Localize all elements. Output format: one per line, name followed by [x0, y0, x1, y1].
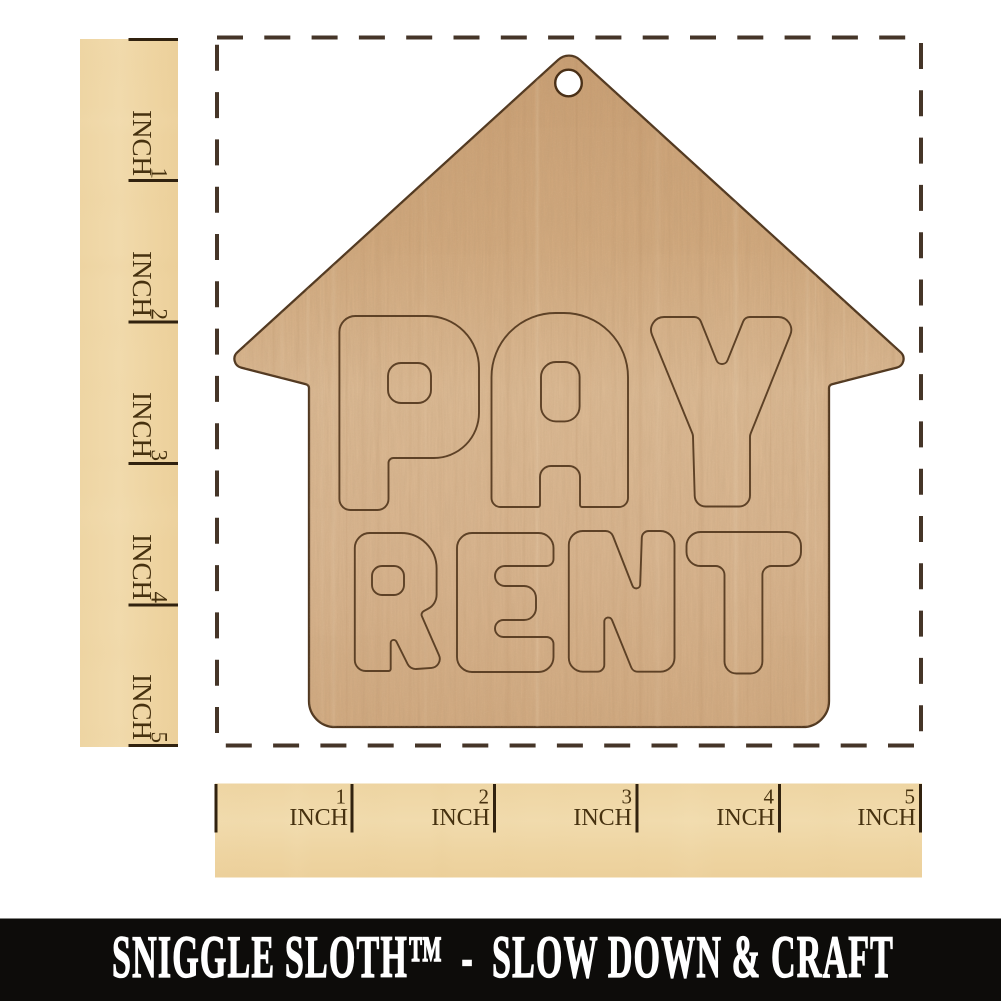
svg-text:INCH: INCH	[127, 534, 157, 600]
svg-text:1: 1	[147, 168, 172, 180]
svg-text:1: 1	[336, 785, 347, 809]
svg-text:5: 5	[905, 785, 916, 809]
svg-text:INCH: INCH	[289, 805, 348, 831]
svg-text:3: 3	[622, 785, 633, 809]
svg-text:5: 5	[147, 732, 172, 744]
svg-text:INCH: INCH	[573, 805, 632, 831]
svg-text:3: 3	[147, 450, 172, 462]
svg-text:INCH: INCH	[857, 805, 916, 831]
svg-text:INCH: INCH	[127, 110, 157, 176]
svg-text:4: 4	[147, 592, 172, 604]
svg-text:INCH: INCH	[127, 392, 157, 458]
svg-text:2: 2	[147, 309, 172, 321]
svg-text:INCH: INCH	[716, 805, 775, 831]
svg-text:INCH: INCH	[431, 805, 490, 831]
svg-text:4: 4	[764, 785, 775, 809]
svg-text:SNIGGLE SLOTH™ - SLOW DOWN & C: SNIGGLE SLOTH™ - SLOW DOWN & CRAFT	[112, 924, 894, 990]
svg-text:2: 2	[479, 785, 490, 809]
svg-text:INCH: INCH	[127, 251, 157, 317]
svg-text:INCH: INCH	[127, 674, 157, 740]
